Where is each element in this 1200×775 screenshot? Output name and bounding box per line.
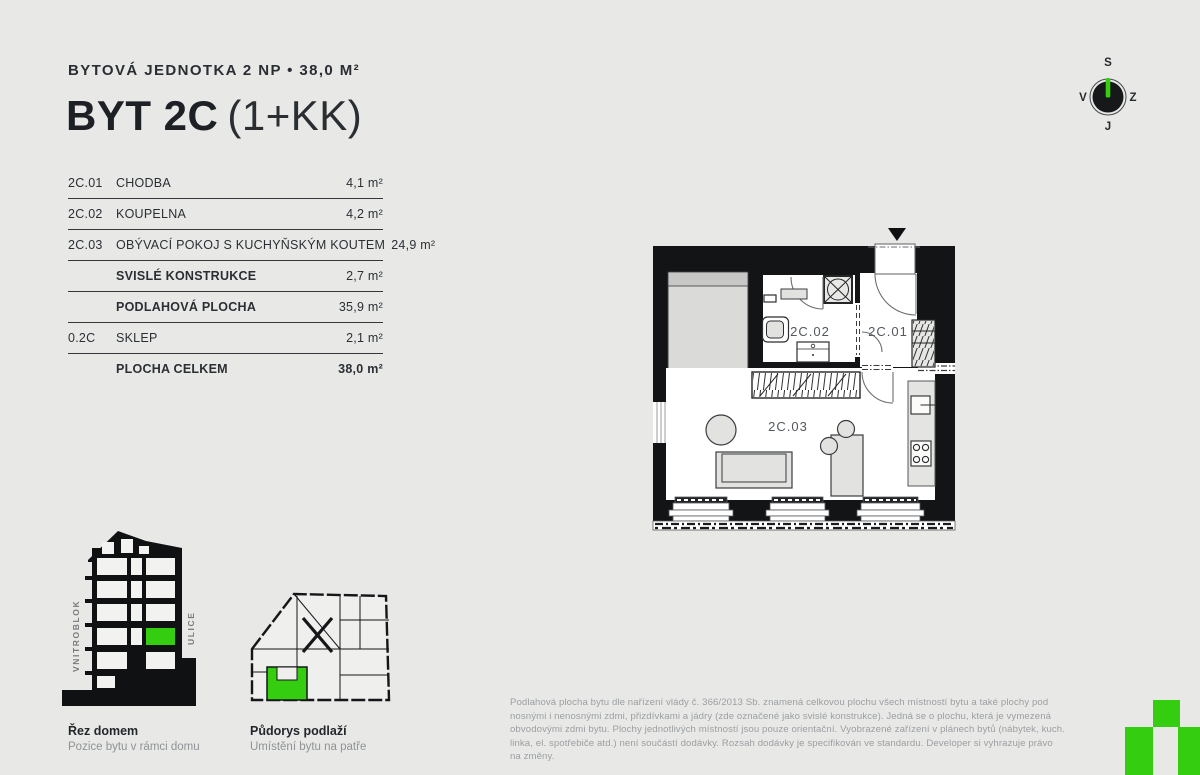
page-title-main: BYT 2C: [66, 92, 218, 139]
hall-wardrobe: [912, 320, 935, 367]
apartment-sheet: BYTOVÁ JEDNOTKA 2 NP • 38,0 M² BYT 2C(1+…: [0, 0, 1200, 775]
compass: S V Z J: [1072, 52, 1144, 140]
stove-icon: [911, 441, 931, 466]
room-name: PODLAHOVÁ PLOCHA: [116, 300, 339, 314]
floorplate-caption-title: Půdorys podlaží: [250, 723, 366, 740]
room-name: OBÝVACÍ POKOJ S KUCHYŇSKÝM KOUTEM: [116, 238, 391, 252]
room-area: 38,0 m²: [338, 362, 383, 376]
wardrobe-strip: [752, 372, 860, 398]
section-unit-highlight: [146, 628, 175, 645]
entrance-arrow-icon: [888, 228, 906, 241]
table-row: PODLAHOVÁ PLOCHA 35,9 m²: [68, 292, 383, 323]
kitchen-counter: [908, 381, 935, 486]
compass-needle-icon: [1106, 78, 1111, 98]
page-title-suffix: (1+KK): [227, 92, 362, 139]
toilet-bowl-icon: [767, 321, 784, 338]
compass-east-label: Z: [1129, 92, 1136, 104]
room-name: SKLEP: [116, 331, 346, 345]
room-area: 2,7 m²: [346, 269, 383, 283]
room-code: 2C.02: [68, 207, 116, 221]
room-area: 2,1 m²: [346, 331, 383, 345]
hallway: [860, 273, 917, 367]
floorplate-caption-sub: Umístění bytu na patře: [250, 740, 366, 756]
room-name: CHODBA: [116, 176, 346, 190]
floorplate-unit-notch: [277, 667, 297, 680]
section-slab-ticks: [85, 576, 92, 675]
developer-logo-icon: [1125, 700, 1200, 775]
section-caption-title: Řez domem: [68, 723, 200, 740]
table-row: PLOCHA CELKEM 38,0 m²: [68, 354, 383, 384]
room-code: 0.2C: [68, 331, 116, 345]
compass-south-label: J: [1105, 121, 1111, 133]
compass-west-label: V: [1079, 92, 1087, 104]
living-label: 2C.03: [768, 419, 808, 434]
grey-block: [668, 272, 748, 370]
room-area: 24,9 m²: [391, 238, 435, 252]
table-row: 2C.03 OBÝVACÍ POKOJ S KUCHYŇSKÝM KOUTEM …: [68, 230, 383, 261]
compass-north-label: S: [1104, 57, 1112, 69]
left-window: [653, 402, 668, 443]
bottom-windows: [669, 497, 924, 521]
table-row: 2C.01 CHODBA 4,1 m²: [68, 168, 383, 199]
room-name: KOUPELNA: [116, 207, 346, 221]
section-right-label: ULICE: [186, 612, 196, 646]
area-table: 2C.01 CHODBA 4,1 m² 2C.02 KOUPELNA 4,2 m…: [68, 168, 383, 384]
chair-icon: [821, 438, 838, 455]
floorplate-thumbnail: [245, 585, 395, 710]
section-caption-sub: Pozice bytu v rámci domu: [68, 740, 200, 756]
section-caption: Řez domem Pozice bytu v rámci domu: [68, 723, 200, 755]
room-area: 4,1 m²: [346, 176, 383, 190]
chair-icon: [838, 421, 855, 438]
table-row: SVISLÉ KONSTRUKCE 2,7 m²: [68, 261, 383, 292]
washer-icon: [797, 342, 829, 362]
table-row: 0.2C SKLEP 2,1 m²: [68, 323, 383, 354]
room-area: 4,2 m²: [346, 207, 383, 221]
facade-strip: [653, 521, 955, 530]
room-code: 2C.03: [68, 238, 116, 252]
room-name: PLOCHA CELKEM: [116, 362, 338, 376]
page-title: BYT 2C(1+KK): [66, 92, 362, 140]
disclaimer-text: Podlahová plocha bytu dle nařízení vlády…: [510, 696, 1066, 764]
table-row: 2C.02 KOUPELNA 4,2 m²: [68, 199, 383, 230]
floor-plan: 2C.02 2C.01 2C.03: [640, 215, 970, 540]
room-area: 35,9 m²: [339, 300, 383, 314]
bathroom-label: 2C.02: [790, 324, 830, 339]
sofa-icon: [716, 452, 792, 488]
shaft-icon: [824, 276, 852, 303]
room-name: SVISLÉ KONSTRUKCE: [116, 269, 346, 283]
floorplate-caption: Půdorys podlaží Umístění bytu na patře: [250, 723, 366, 755]
hallway-label: 2C.01: [868, 324, 908, 339]
section-left-label: VNITROBLOK: [71, 600, 81, 672]
building-section: VNITROBLOK ULICE: [55, 525, 215, 715]
unit-subtitle: BYTOVÁ JEDNOTKA 2 NP • 38,0 M²: [68, 62, 360, 79]
room-code: 2C.01: [68, 176, 116, 190]
table-icon: [706, 415, 736, 445]
